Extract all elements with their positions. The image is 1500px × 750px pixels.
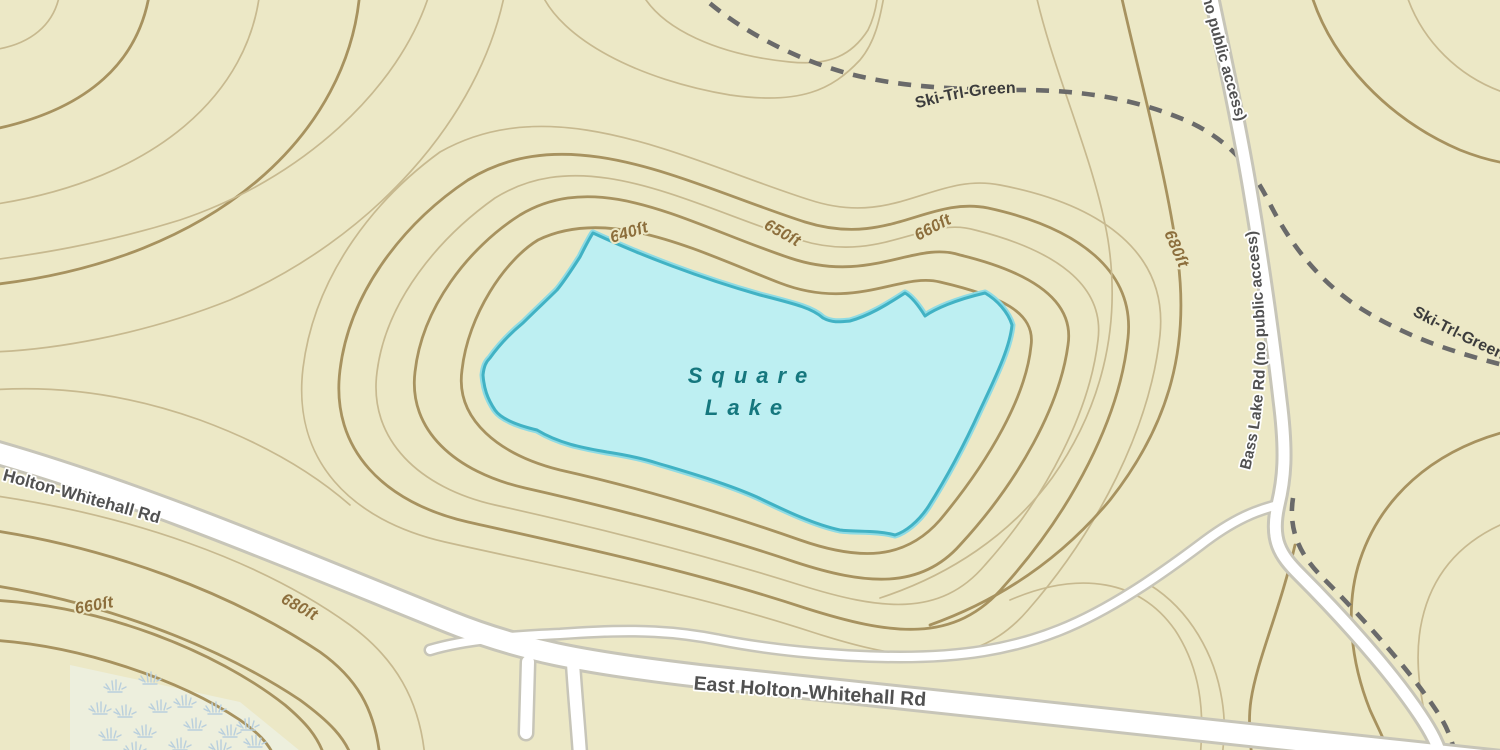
topo-map-svg: 640ft 650ft 660ft 680ft 660ft 680ft Ski-… bbox=[0, 0, 1500, 750]
map-canvas[interactable]: 640ft 650ft 660ft 680ft 660ft 680ft Ski-… bbox=[0, 0, 1500, 750]
lake-label-line1: Square bbox=[688, 363, 817, 388]
lake-label-line2: Lake bbox=[705, 395, 791, 420]
